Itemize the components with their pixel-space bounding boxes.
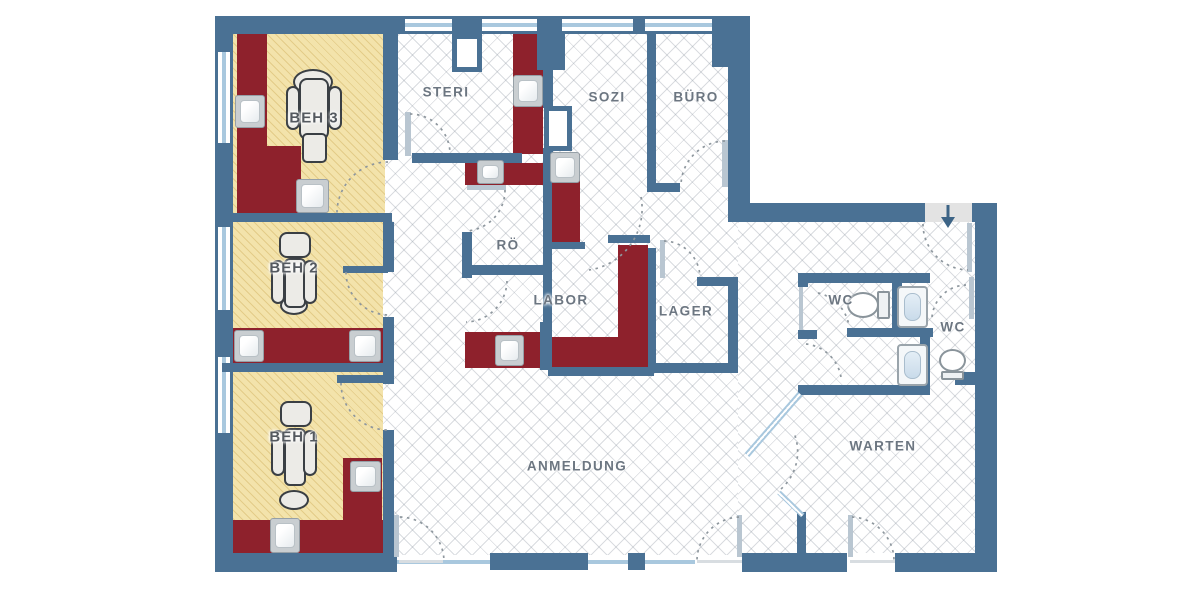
label-buero: BÜRO [673, 90, 718, 105]
door-leaf-wc-right [969, 277, 974, 319]
wall-beh2-beh1 [222, 363, 392, 372]
label-wc-left: WC [828, 293, 853, 308]
washbasin-wc-upper [897, 286, 928, 328]
wall-steri-sozi-upper [543, 34, 553, 108]
wall-bottom-seg2 [628, 553, 645, 570]
wall-lager-bottom [648, 363, 738, 373]
label-beh1: BEH 1 [269, 429, 318, 446]
wall-corridor-beh1b [383, 430, 394, 553]
window-bottom-2 [588, 556, 628, 566]
cabinet-beh3-corner [237, 146, 301, 213]
window-bottom-3 [645, 556, 695, 566]
sink-labor [495, 335, 524, 366]
label-beh3: BEH 3 [289, 110, 338, 127]
wall-wc-bottom [798, 385, 930, 395]
door-leaf-entrance [967, 223, 972, 272]
door-leaf-anmeldung-left [394, 515, 399, 557]
wall-right [975, 203, 997, 572]
wall-wc-mid-h [847, 328, 933, 337]
wall-lager-left [648, 248, 656, 373]
sink-sozi [550, 152, 580, 183]
wall-labor-pillar [540, 322, 552, 370]
door-leaf-roe [467, 185, 506, 190]
wall-bottom-seg4 [895, 553, 997, 572]
label-anmeldung: ANMELDUNG [527, 459, 627, 474]
pass-through-steri-sozi [544, 106, 572, 151]
sink-beh2-right [349, 330, 381, 362]
sink-beh1-right [350, 461, 381, 492]
duct-shaft-steri [452, 34, 482, 72]
wall-bottom-seg1 [490, 553, 588, 570]
sink-steri [513, 75, 543, 107]
label-warten: WARTEN [850, 439, 917, 454]
door-leaf-anmeldung-mid [737, 515, 742, 557]
window-top-1 [405, 19, 452, 31]
wall-wc-left-stub [798, 330, 817, 339]
wall-sozi-bottom-stub [647, 183, 680, 192]
chair-headrest [279, 232, 311, 258]
door-leaf-warten [848, 515, 853, 557]
window-left-beh3 [218, 52, 230, 143]
wall-bottom-left [215, 553, 397, 572]
label-roe: RÖ [496, 238, 519, 253]
wall-corridor-beh3 [383, 34, 398, 160]
window-left-beh2 [218, 227, 230, 310]
label-lager: LAGER [659, 304, 713, 319]
wall-wing-top [728, 203, 925, 222]
wall-labor-counter-jamb [608, 235, 650, 243]
door-leaf-steri [405, 112, 411, 156]
door-leaf-lager [660, 240, 665, 278]
wall-beh2-door-leaf [343, 266, 388, 273]
wall-partition-stub [797, 512, 806, 557]
wall-steri-bottom [412, 153, 522, 163]
wall-buero-right [728, 16, 750, 212]
window-top-3 [562, 19, 633, 31]
chair-headrest [280, 401, 312, 427]
wall-sozi-buero [647, 34, 656, 184]
sink-beh2-left [234, 330, 264, 362]
label-sozi: SOZI [588, 90, 625, 105]
toilet-bowl-wc-right [939, 349, 966, 372]
door-leaf-buero [722, 140, 728, 187]
sink-beh3-corner [296, 179, 329, 213]
cabinet-beh1-bottom [233, 520, 383, 553]
pillar-buero-corner [712, 34, 730, 67]
wall-sozi-cabinet-stub [548, 242, 585, 249]
wall-wc-top [798, 273, 930, 283]
wall-corridor-beh2b [383, 317, 394, 372]
counter-labor-horizontal [552, 337, 650, 368]
door-sill-1 [399, 560, 443, 563]
door-leaf-wc-left [799, 287, 803, 330]
chair-footrest [279, 490, 309, 510]
label-beh2: BEH 2 [269, 260, 318, 277]
wall-corridor-beh2a [383, 222, 394, 272]
entrance-marker [925, 203, 972, 222]
washbasin-wc-lower [897, 344, 928, 386]
sink-roe [477, 160, 504, 184]
counter-labor-vertical [618, 245, 648, 340]
wall-wc-left-a [798, 273, 808, 287]
label-wc-right: WC [940, 320, 965, 335]
window-top-2 [482, 19, 537, 31]
wall-roe-bottom [462, 265, 552, 275]
toilet-tank-wc-right [941, 371, 964, 380]
wall-beh1-door-jamb [337, 375, 388, 383]
label-labor: LABOR [534, 293, 589, 308]
window-top-4 [645, 19, 712, 31]
wall-lager-right [728, 277, 738, 373]
sink-beh1-bottom [270, 518, 300, 553]
chair-footrest [302, 133, 327, 163]
floor-plan: STERI SOZI BÜRO RÖ LABOR LAGER WC WC WAR… [0, 0, 1200, 600]
label-steri: STERI [423, 85, 470, 100]
door-sill-3 [850, 560, 895, 563]
wall-beh3-beh2 [222, 213, 392, 222]
wall-labor-bottom [548, 367, 654, 376]
wall-bottom-seg3 [742, 553, 847, 572]
door-sill-2 [697, 560, 742, 563]
sink-beh3-wall [235, 95, 265, 128]
